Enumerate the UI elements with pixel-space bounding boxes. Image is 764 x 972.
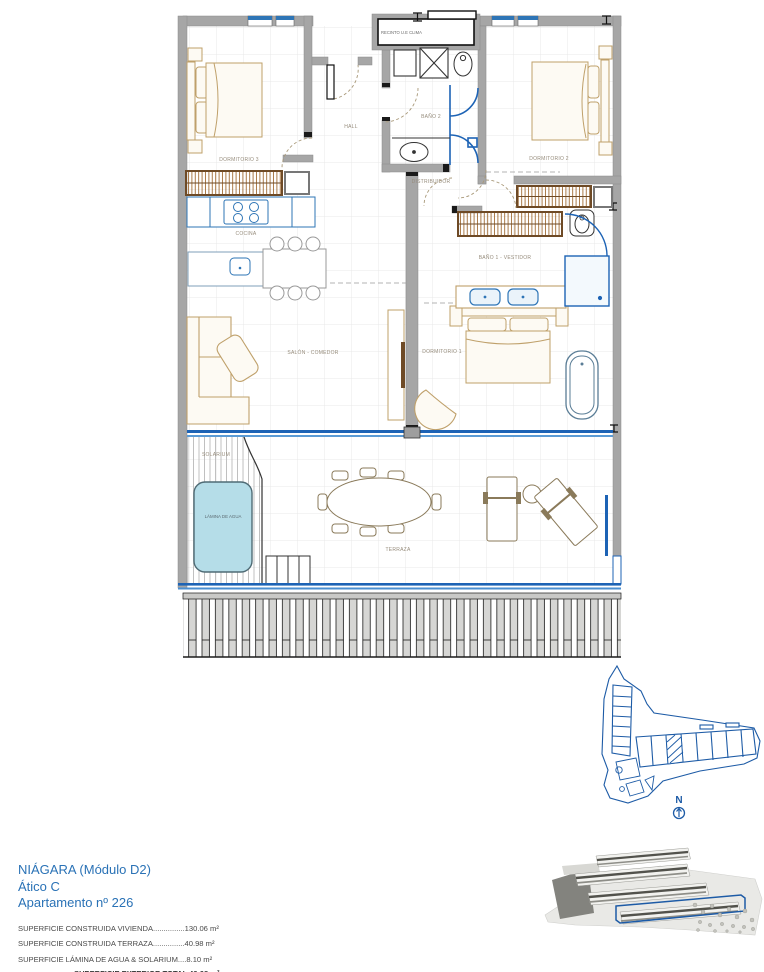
site-wing-horizontal	[636, 723, 756, 767]
project-title: NIÁGARA (Módulo D2)	[18, 862, 298, 879]
cabinet-icon	[394, 50, 416, 76]
window-icon	[276, 16, 294, 26]
site-lower-details	[616, 758, 654, 796]
dorm2-label: DORMITORIO 2	[529, 156, 569, 162]
building-bar	[596, 848, 691, 867]
floor-plan-drawing: RECINTO U.E CLIMA	[0, 0, 764, 972]
wardrobe-vestidor-lower	[458, 212, 562, 236]
tv-icon	[401, 342, 405, 388]
solarium-label: SOLARIUM	[202, 452, 230, 458]
window-icon	[518, 16, 538, 26]
vanity-double-sink	[456, 286, 566, 308]
area-line-vivienda: SUPERFICIE CONSTRUIDA VIVIENDA..........…	[18, 921, 298, 937]
dorm1-label: DORMITORIO 1	[422, 349, 462, 355]
bathtub-icon	[566, 351, 598, 419]
dining-table-icon	[327, 478, 431, 526]
tv-cabinet	[388, 310, 405, 420]
hob-burner-icon	[234, 214, 243, 223]
terrace-steps	[266, 556, 310, 584]
apartment-title: Apartamento nº 226	[18, 895, 298, 912]
kitchen	[187, 197, 315, 227]
north-label: N	[675, 795, 682, 806]
hall-label: HALL	[344, 124, 358, 130]
floor-title: Ático C	[18, 879, 298, 896]
wardrobe-dorm3	[186, 171, 309, 195]
terraza-label: TERRAZA	[385, 547, 411, 553]
pool	[194, 482, 252, 572]
terrace-edge-glazing	[178, 583, 621, 590]
bano1-label: BAÑO 1 - VESTIDOR	[479, 254, 532, 261]
railing	[183, 593, 621, 657]
shower-tray-icon	[420, 48, 448, 78]
window-icon	[492, 16, 514, 26]
entrance-door-leaf	[327, 65, 334, 99]
window-icon	[248, 16, 272, 26]
hob-burner-icon	[250, 203, 259, 212]
site-wing-vertical	[612, 685, 632, 756]
dorm3-label: DORMITORIO 3	[219, 157, 259, 163]
recinto-label: RECINTO U.E CLIMA	[381, 30, 422, 35]
hob-burner-icon	[250, 214, 259, 223]
cocina-label: COCINA	[236, 231, 257, 237]
compass-arrow-icon	[677, 809, 682, 818]
site-unit-highlight	[666, 734, 683, 764]
toilet-bano2-icon	[454, 52, 472, 76]
wardrobe-vestidor-upper	[517, 186, 612, 207]
unit-info-block: NIÁGARA (Módulo D2) Ático C Apartamento …	[18, 862, 298, 972]
area-line-lamina-solarium: SUPERFICIE LÁMINA DE AGUA & SOLARIUM....…	[18, 952, 298, 968]
apartment-plan-sheet: RECINTO U.E CLIMA	[0, 0, 764, 972]
area-line-terraza: SUPERFICIE CONSTRUIDA TERRAZA...........…	[18, 936, 298, 952]
site-key-plan	[602, 666, 760, 803]
building-render	[545, 848, 762, 935]
hob-burner-icon	[234, 203, 243, 212]
recinto-clima-box: RECINTO U.E CLIMA	[372, 11, 480, 50]
lamina-label: LÁMINA DE AGUA	[205, 514, 242, 519]
distribuidor-label: DISTRIBUIDOR	[412, 179, 451, 185]
salon-label: SALÓN - COMEDOR	[287, 349, 338, 356]
bano2-label: BAÑO 2	[421, 113, 441, 120]
north-compass: N	[674, 795, 685, 819]
lounger-icon	[483, 477, 521, 541]
